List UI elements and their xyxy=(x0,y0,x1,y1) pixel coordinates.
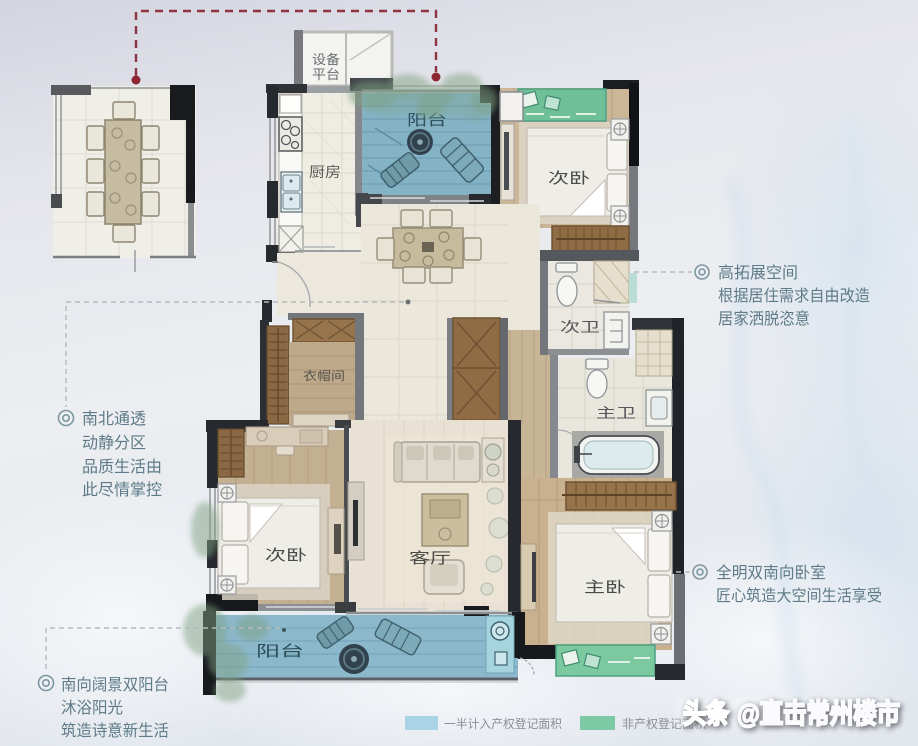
svg-text:居家洒脱恣意: 居家洒脱恣意 xyxy=(718,309,810,328)
svg-text:主卧: 主卧 xyxy=(584,579,626,596)
svg-text:主卫: 主卫 xyxy=(596,405,636,421)
svg-text:客厅: 客厅 xyxy=(409,550,451,567)
svg-text:根据居住需求自由改造: 根据居住需求自由改造 xyxy=(718,287,870,305)
svg-text:沐浴阳光: 沐浴阳光 xyxy=(61,699,123,717)
svg-text:衣帽间: 衣帽间 xyxy=(303,368,345,383)
svg-text:动静分区: 动静分区 xyxy=(82,434,146,452)
svg-text:@直击常州楼市: @直击常州楼市 xyxy=(737,698,900,729)
svg-text:南北通透: 南北通透 xyxy=(82,410,146,428)
svg-text:品质生活由: 品质生活由 xyxy=(82,458,162,476)
svg-text:次卫: 次卫 xyxy=(560,319,600,335)
svg-text:全明双南向卧室: 全明双南向卧室 xyxy=(716,564,826,582)
svg-text:头条: 头条 xyxy=(683,699,730,729)
svg-text:筑造诗意新生活: 筑造诗意新生活 xyxy=(61,721,169,740)
svg-text:设备: 设备 xyxy=(312,52,340,67)
svg-text:此尽情掌控: 此尽情掌控 xyxy=(82,481,162,499)
svg-text:厨房: 厨房 xyxy=(309,164,341,180)
svg-text:平台: 平台 xyxy=(312,67,340,82)
svg-text:一半计入产权登记面积: 一半计入产权登记面积 xyxy=(444,716,562,731)
svg-text:次卧: 次卧 xyxy=(265,547,307,564)
svg-text:南向阔景双阳台: 南向阔景双阳台 xyxy=(61,676,169,694)
svg-text:次卧: 次卧 xyxy=(548,170,590,187)
svg-text:高拓展空间: 高拓展空间 xyxy=(718,264,798,282)
svg-text:匠心筑造大空间生活享受: 匠心筑造大空间生活享受 xyxy=(716,587,882,605)
svg-text:阳台: 阳台 xyxy=(256,643,304,660)
